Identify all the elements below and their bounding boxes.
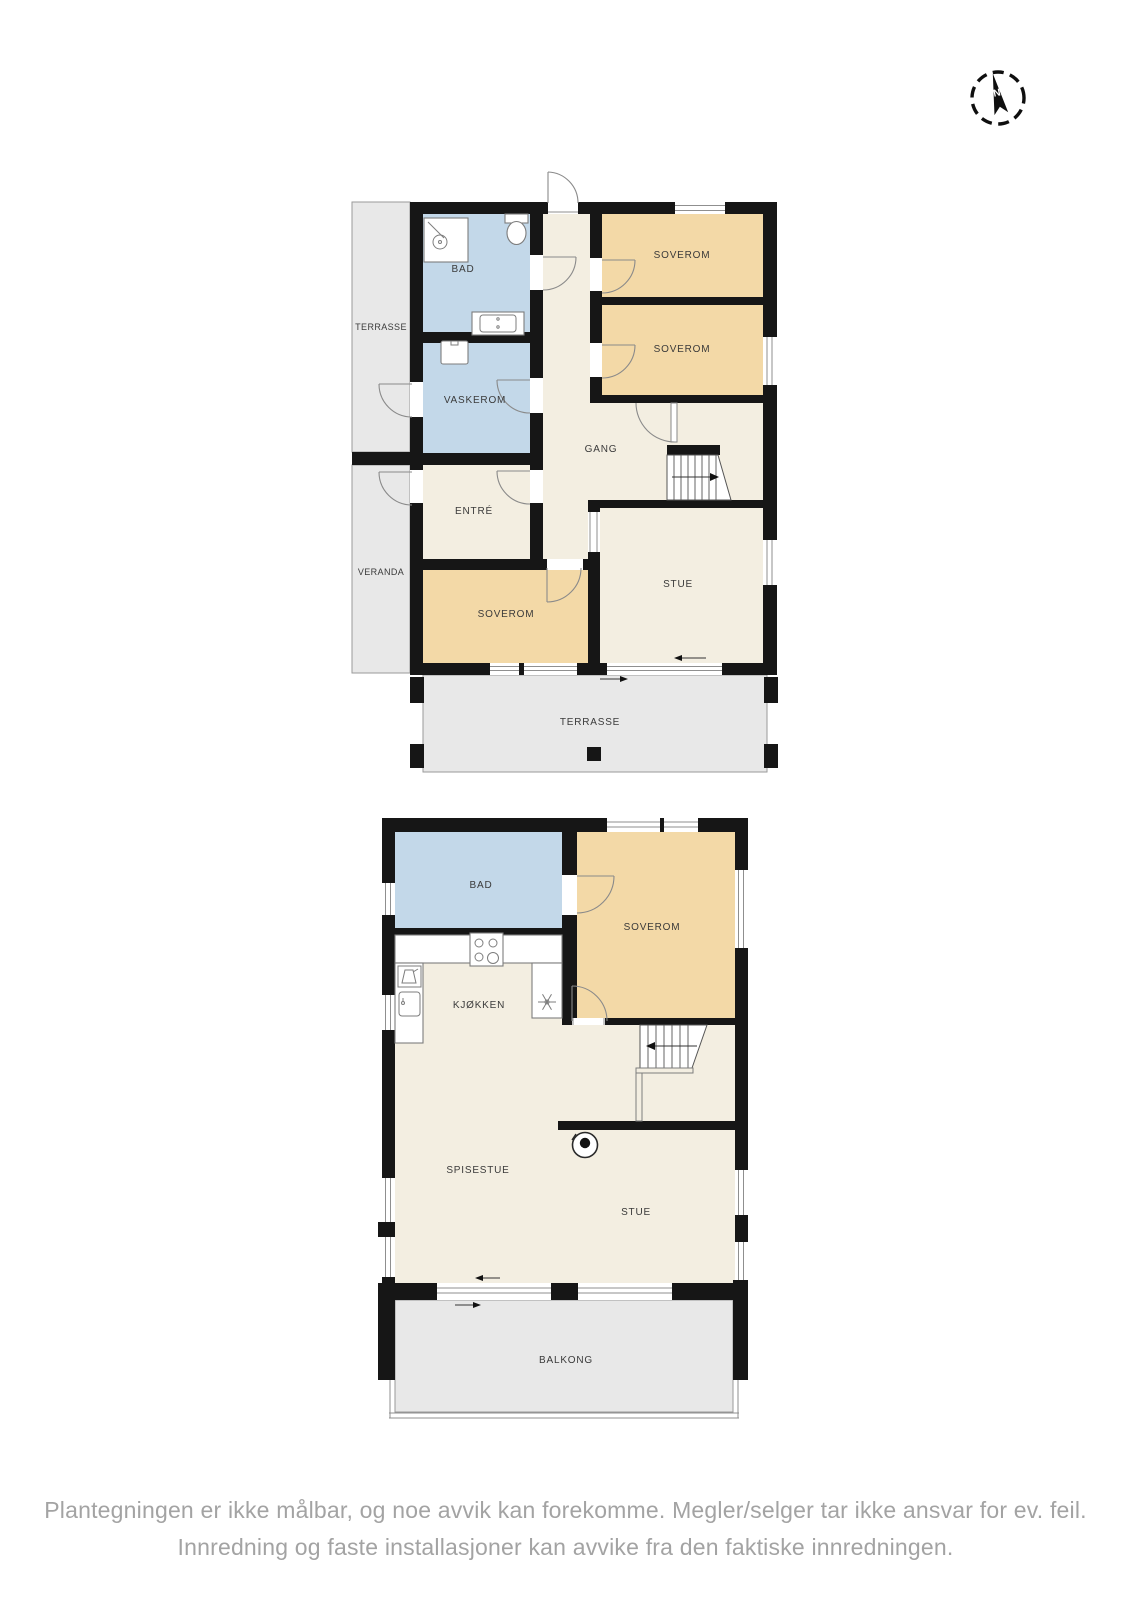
room-label-bad2: BAD — [470, 880, 493, 891]
compass-icon: N — [967, 67, 1029, 129]
room-label-terrasse-left: TERRASSE — [355, 322, 407, 332]
room-label-entre: ENTRÉ — [455, 504, 493, 517]
floor-plan-1: TERRASSE BAD VASKEROM SOVEROM SOVEROM GA… — [352, 172, 778, 772]
wood-stove-icon — [572, 1133, 598, 1158]
sliding-door-window — [578, 1283, 672, 1300]
window — [607, 818, 698, 832]
floorplan-drawing: TERRASSE BAD VASKEROM SOVEROM SOVEROM GA… — [0, 0, 1131, 1600]
window — [382, 883, 395, 915]
room-label-gang: GANG — [585, 444, 618, 455]
sink-icon — [472, 312, 524, 335]
room-label-kjokken: KJØKKEN — [453, 1000, 505, 1011]
window — [735, 1170, 748, 1215]
room-label-soverom: SOVEROM — [624, 922, 681, 933]
disclaimer: Plantegningen er ikke målbar, og noe avv… — [0, 1492, 1131, 1566]
window — [763, 337, 777, 385]
sliding-door-window — [437, 1283, 551, 1300]
laundry-sink-icon — [441, 341, 468, 364]
room-label-terrasse: TERRASSE — [560, 717, 620, 728]
disclaimer-line2: Innredning og faste installasjoner kan a… — [0, 1529, 1131, 1566]
room-label-bad: BAD — [452, 264, 475, 275]
room-label-soverom-3: SOVEROM — [478, 609, 535, 620]
room-label-soverom-2: SOVEROM — [654, 344, 711, 355]
sliding-door-window — [490, 663, 577, 675]
room-label-stue2: STUE — [621, 1207, 651, 1218]
toilet-icon — [505, 214, 528, 245]
floor-plan-2: BAD SOVEROM KJØKKEN SPISESTUE STUE BALKO… — [378, 818, 748, 1418]
room-label-stue: STUE — [663, 579, 693, 590]
sliding-door-window — [607, 663, 722, 675]
shower-icon — [424, 218, 468, 262]
room-label-vaskerom: VASKEROM — [444, 395, 506, 406]
stove-icon — [470, 933, 503, 966]
window — [382, 1237, 395, 1277]
floorplan-page: TERRASSE BAD VASKEROM SOVEROM SOVEROM GA… — [0, 0, 1131, 1600]
window — [382, 1178, 395, 1222]
kitchen-counter-right — [532, 963, 562, 1018]
stue-opening — [588, 512, 600, 552]
window — [735, 870, 748, 948]
room-label-balkong: BALKONG — [539, 1355, 593, 1366]
compass-north-label: N — [992, 87, 1001, 99]
window — [735, 1242, 748, 1280]
disclaimer-line1: Plantegningen er ikke målbar, og noe avv… — [0, 1492, 1131, 1529]
window — [382, 995, 395, 1030]
room-label-soverom-1: SOVEROM — [654, 250, 711, 261]
room-label-veranda: VERANDA — [358, 567, 404, 577]
window — [675, 202, 725, 214]
entrance-door-swing — [548, 172, 578, 214]
window — [763, 540, 777, 585]
room-label-spisestue: SPISESTUE — [446, 1165, 509, 1176]
